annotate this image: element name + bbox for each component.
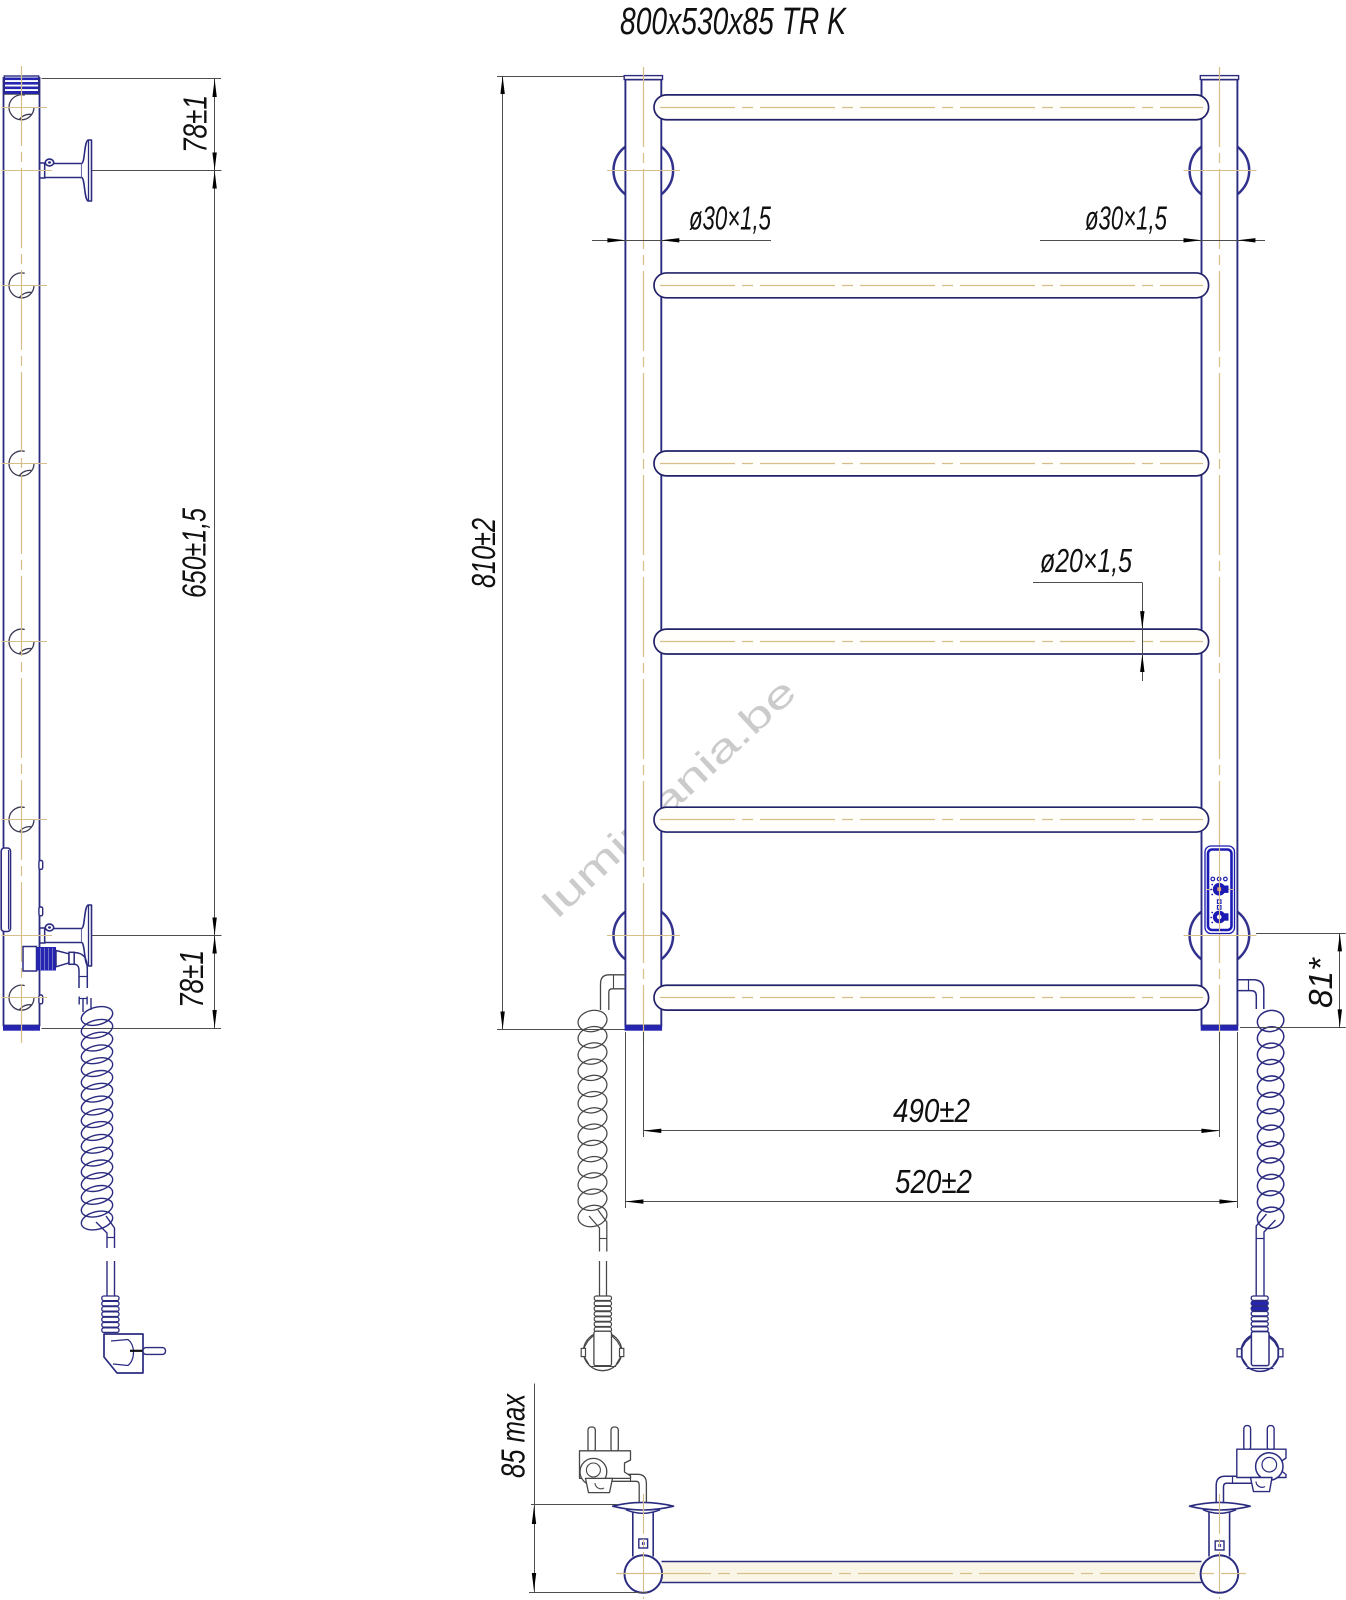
svg-text:78±1: 78±1	[173, 950, 210, 1008]
svg-text:ø30×1,5: ø30×1,5	[1085, 200, 1167, 237]
svg-text:810±2: 810±2	[465, 518, 502, 588]
svg-text:800x530x85 TR K: 800x530x85 TR K	[620, 1, 847, 43]
svg-text:520±2: 520±2	[895, 1163, 972, 1200]
svg-text:ø20×1,5: ø20×1,5	[1040, 542, 1132, 579]
svg-text:78±1: 78±1	[177, 95, 214, 153]
svg-text:650±1,5: 650±1,5	[176, 508, 213, 598]
svg-text:490±2: 490±2	[893, 1092, 970, 1129]
svg-text:85 max: 85 max	[495, 1393, 532, 1478]
svg-text:ø30×1,5: ø30×1,5	[689, 200, 771, 237]
svg-text:81*: 81*	[1302, 957, 1339, 1008]
